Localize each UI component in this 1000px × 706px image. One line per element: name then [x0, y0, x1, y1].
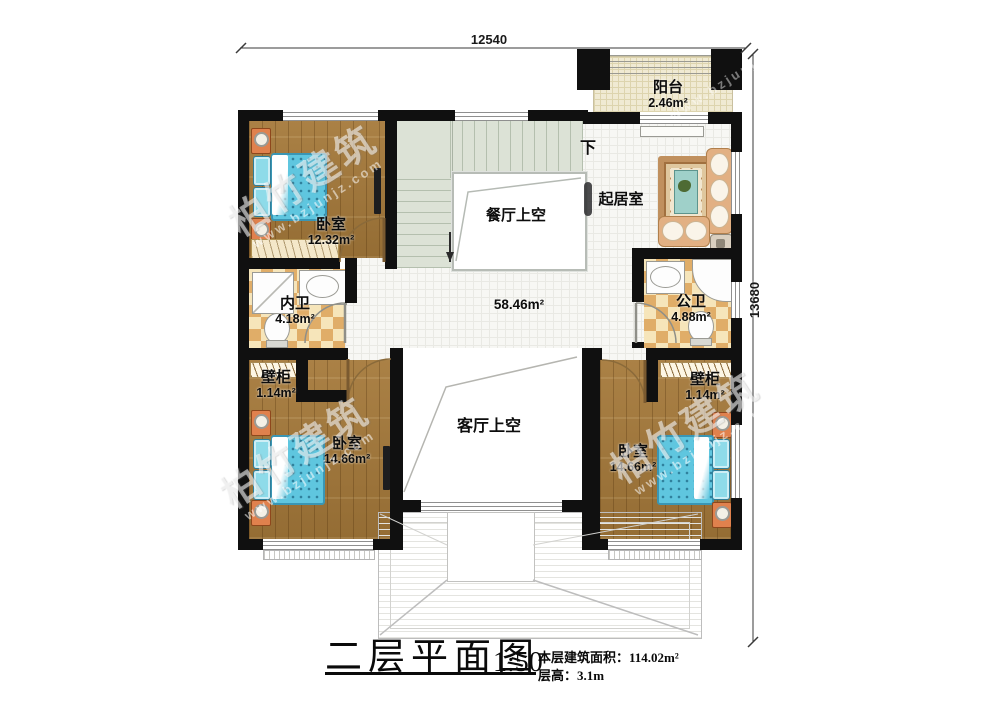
tv: [374, 168, 381, 214]
wall: [646, 348, 742, 360]
window: [455, 110, 528, 121]
window: [283, 110, 378, 121]
wall: [238, 258, 340, 269]
window: [731, 425, 742, 498]
room-label-public-bath: 公卫 4.88m²: [671, 294, 711, 324]
wall: [296, 390, 348, 402]
room-label-balcony: 阳台 2.46m²: [648, 80, 688, 110]
tv: [383, 446, 390, 490]
room-label-inner-bath: 内卫 4.18m²: [275, 296, 315, 326]
floor-height-label: 层高：3.1m: [538, 668, 604, 684]
sofa-cushion: [685, 221, 707, 241]
bed-pillow: [253, 156, 271, 186]
window-sill-left: [263, 550, 375, 560]
balcony-railing: [608, 52, 713, 74]
bed-pillow: [253, 470, 271, 500]
room-label-living-void: 客厅上空: [457, 419, 521, 435]
window: [731, 152, 742, 214]
floor-plan-canvas: 12540 13680 阳台 2.46m² 卧室 12.32m² 餐厅上空 起居…: [0, 0, 1000, 706]
stair-down-label: 下: [580, 134, 596, 158]
window: [263, 539, 373, 550]
toilet-tank: [690, 338, 712, 346]
wall: [390, 348, 403, 550]
tv-cabinet: [640, 126, 704, 137]
window: [731, 282, 742, 318]
room-label-closet-right: 壁柜 1.14m²: [685, 372, 725, 402]
bed-pillow: [712, 439, 730, 469]
floor-area-label: 本层建筑面积：114.02m²: [538, 650, 679, 666]
bed-sheet: [272, 437, 288, 499]
entry-canopy-core: [447, 512, 535, 582]
lamp-icon: [254, 504, 269, 519]
room-label-bedroom-bottom-right: 卧室 14.66m²: [610, 444, 657, 474]
sofa-cushion: [710, 179, 729, 202]
sink-icon: [306, 275, 339, 298]
wall: [390, 500, 421, 512]
lamp-icon: [254, 132, 269, 147]
lamp-icon: [715, 506, 730, 521]
wall: [238, 110, 249, 550]
wall: [632, 342, 644, 348]
bed-sheet: [272, 155, 288, 215]
dimension-top: 12540: [471, 31, 507, 49]
lamp-icon: [254, 222, 269, 237]
dimension-right: 13680: [746, 282, 764, 318]
stair-treads-upper: [450, 121, 583, 178]
stair-railing-post: [584, 182, 592, 216]
room-label-living-room: 起居室: [598, 192, 643, 208]
wall: [632, 248, 742, 259]
room-label-dining-void: 餐厅上空: [486, 208, 546, 224]
hall-area-label: 58.46m²: [494, 298, 544, 312]
bed-sheet: [694, 437, 709, 499]
wall: [582, 348, 602, 360]
balcony-door: [640, 112, 708, 124]
coffee-table: [674, 170, 698, 214]
stair-treads-lower: [397, 178, 452, 268]
bed-pillow: [712, 470, 730, 500]
wall: [385, 110, 397, 269]
lamp-icon: [715, 416, 730, 431]
window: [421, 500, 562, 511]
bed-pillow: [253, 187, 271, 217]
sofa-cushion: [710, 153, 729, 176]
toilet-tank: [266, 340, 288, 348]
title-underline: [325, 672, 536, 675]
window: [608, 539, 700, 550]
lamp-icon: [254, 414, 269, 429]
wall: [238, 348, 348, 360]
balcony-column-right: [711, 49, 742, 90]
title-block: 二层平面图 1:50 本层建筑面积：114.02m² 层高：3.1m: [325, 638, 745, 698]
balcony-column-left: [577, 49, 610, 90]
room-label-closet-left: 壁柜 1.14m²: [256, 370, 296, 400]
wall: [582, 348, 600, 550]
stair-direction-line: [449, 232, 451, 262]
wall: [646, 360, 658, 402]
bed-pillow: [253, 439, 271, 469]
sink-icon: [650, 266, 681, 288]
room-label-bedroom-top-left: 卧室 12.32m²: [308, 217, 355, 247]
side-table-inset: [716, 239, 725, 248]
window-sill-right: [608, 550, 702, 560]
wall: [345, 258, 357, 303]
wall: [632, 248, 644, 302]
sofa-cushion: [662, 221, 684, 241]
sofa-cushion: [710, 205, 729, 228]
room-label-bedroom-bottom-left: 卧室 14.66m²: [324, 436, 371, 466]
